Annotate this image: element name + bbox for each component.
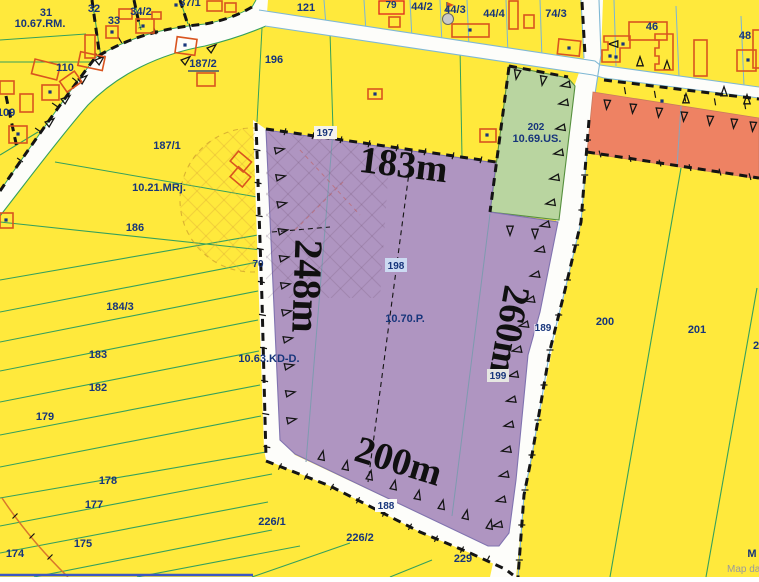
svg-text:248m: 248m [283, 239, 331, 334]
svg-text:110: 110 [56, 62, 74, 74]
svg-text:109: 109 [0, 107, 15, 119]
svg-text:37/1: 37/1 [179, 0, 200, 9]
svg-text:10.70.P.: 10.70.P. [385, 313, 425, 325]
svg-text:2: 2 [753, 340, 759, 352]
svg-text:189: 189 [535, 323, 552, 334]
svg-text:200: 200 [596, 316, 614, 328]
svg-text:44/2: 44/2 [411, 1, 432, 13]
svg-text:198: 198 [388, 261, 405, 272]
svg-text:187/1: 187/1 [153, 140, 181, 152]
svg-text:197: 197 [317, 128, 334, 139]
svg-text:187/2: 187/2 [189, 58, 217, 70]
svg-text:33: 33 [108, 15, 120, 27]
svg-text:121: 121 [297, 2, 315, 14]
svg-text:174: 174 [6, 548, 25, 560]
svg-text:79: 79 [385, 0, 397, 11]
svg-text:Map dat: Map dat [727, 564, 759, 575]
svg-text:202: 202 [528, 122, 545, 133]
svg-text:44/4: 44/4 [483, 8, 505, 20]
svg-text:10.67.RM.: 10.67.RM. [15, 18, 66, 30]
svg-text:199: 199 [490, 371, 507, 382]
svg-text:201: 201 [688, 324, 706, 336]
svg-text:188: 188 [378, 501, 395, 512]
svg-text:177: 177 [85, 499, 103, 511]
svg-text:44/3: 44/3 [444, 4, 465, 16]
svg-text:196: 196 [265, 54, 283, 66]
svg-text:226/2: 226/2 [346, 532, 374, 544]
svg-text:179: 179 [36, 411, 54, 423]
svg-text:184/3: 184/3 [106, 301, 134, 313]
svg-text:M: M [747, 548, 756, 560]
svg-text:48: 48 [739, 30, 751, 42]
svg-text:226/1: 226/1 [258, 516, 286, 528]
svg-text:10.63.KD-D.: 10.63.KD-D. [238, 353, 299, 365]
svg-text:182: 182 [89, 382, 107, 394]
svg-text:74/3: 74/3 [545, 8, 566, 20]
svg-text:229: 229 [454, 553, 472, 565]
svg-text:186: 186 [126, 222, 144, 234]
svg-text:10.69.US.: 10.69.US. [513, 133, 562, 145]
svg-text:10.21.MRj.: 10.21.MRj. [132, 182, 186, 194]
svg-text:46: 46 [646, 21, 658, 33]
svg-text:183: 183 [89, 349, 107, 361]
svg-text:178: 178 [99, 475, 117, 487]
svg-text:175: 175 [74, 538, 92, 550]
svg-text:32: 32 [88, 3, 100, 15]
svg-text:34/2: 34/2 [130, 6, 151, 18]
svg-text:70: 70 [252, 259, 264, 270]
